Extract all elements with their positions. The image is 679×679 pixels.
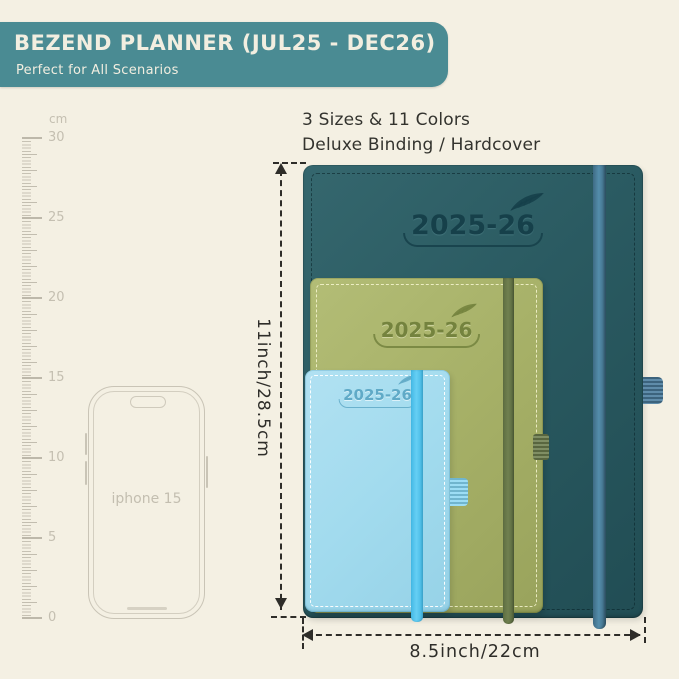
stitching	[310, 375, 445, 607]
ruler-tick-20: 20	[22, 290, 94, 306]
cm-ruler: cm 30 25 20 15 10 5 0	[22, 114, 94, 629]
logo-swoosh	[338, 399, 417, 408]
header-banner: BEZEND PLANNER (JUL25 - DEC26) Perfect f…	[0, 22, 448, 87]
year-logo: 2025-26	[381, 318, 473, 342]
ruler-tick-15: 15	[22, 370, 94, 386]
arrow-right-icon	[630, 629, 641, 641]
width-dimension-line	[306, 634, 640, 636]
planner-small: 2025-26	[305, 370, 450, 612]
year-logo: 2025-26	[411, 210, 535, 241]
ruler-tick-0: 0	[22, 610, 94, 626]
iphone-outline: iphone 15	[88, 386, 205, 619]
feature-line-sizes: 3 Sizes & 11 Colors	[302, 108, 540, 133]
ruler-tick-30: 30	[22, 130, 94, 146]
logo-swoosh	[373, 334, 481, 348]
banner-title: BEZEND PLANNER (JUL25 - DEC26)	[14, 31, 436, 55]
elastic-band	[503, 278, 514, 624]
arrow-up-icon	[275, 163, 287, 174]
elastic-band	[593, 165, 606, 629]
feature-line-binding: Deluxe Binding / Hardcover	[302, 133, 540, 158]
arrow-down-icon	[275, 598, 287, 609]
pen-loop	[533, 434, 549, 460]
banner-subtitle: Perfect for All Scenarios	[16, 63, 179, 78]
iphone-volume-button	[85, 433, 87, 455]
product-image: BEZEND PLANNER (JUL25 - DEC26) Perfect f…	[0, 0, 679, 679]
feather-icon	[450, 303, 478, 319]
arrow-left-icon	[302, 629, 313, 641]
ruler-tick-10: 10	[22, 450, 94, 466]
pen-loop	[450, 478, 468, 506]
height-dimension-line	[280, 170, 282, 610]
width-dimension-label: 8.5inch/22cm	[375, 642, 575, 662]
logo-swoosh	[403, 233, 543, 247]
iphone-side-button	[206, 456, 208, 488]
height-dimension-label: 11inch/28.5cm	[253, 303, 273, 473]
height-extent-bottom	[271, 616, 306, 618]
iphone-label: iphone 15	[89, 491, 204, 507]
iphone-volume-button	[85, 461, 87, 485]
width-extent-right	[644, 617, 646, 643]
ruler-tick-5: 5	[22, 530, 94, 546]
ruler-tick-25: 25	[22, 210, 94, 226]
elastic-band	[411, 370, 423, 622]
ruler-unit-label: cm	[49, 112, 67, 126]
year-logo: 2025-26	[343, 385, 412, 404]
feature-text: 3 Sizes & 11 Colors Deluxe Binding / Har…	[302, 108, 540, 158]
pen-loop	[643, 377, 663, 404]
iphone-home-bar	[127, 607, 167, 610]
feather-icon	[509, 192, 545, 213]
iphone-dynamic-island	[130, 396, 166, 408]
